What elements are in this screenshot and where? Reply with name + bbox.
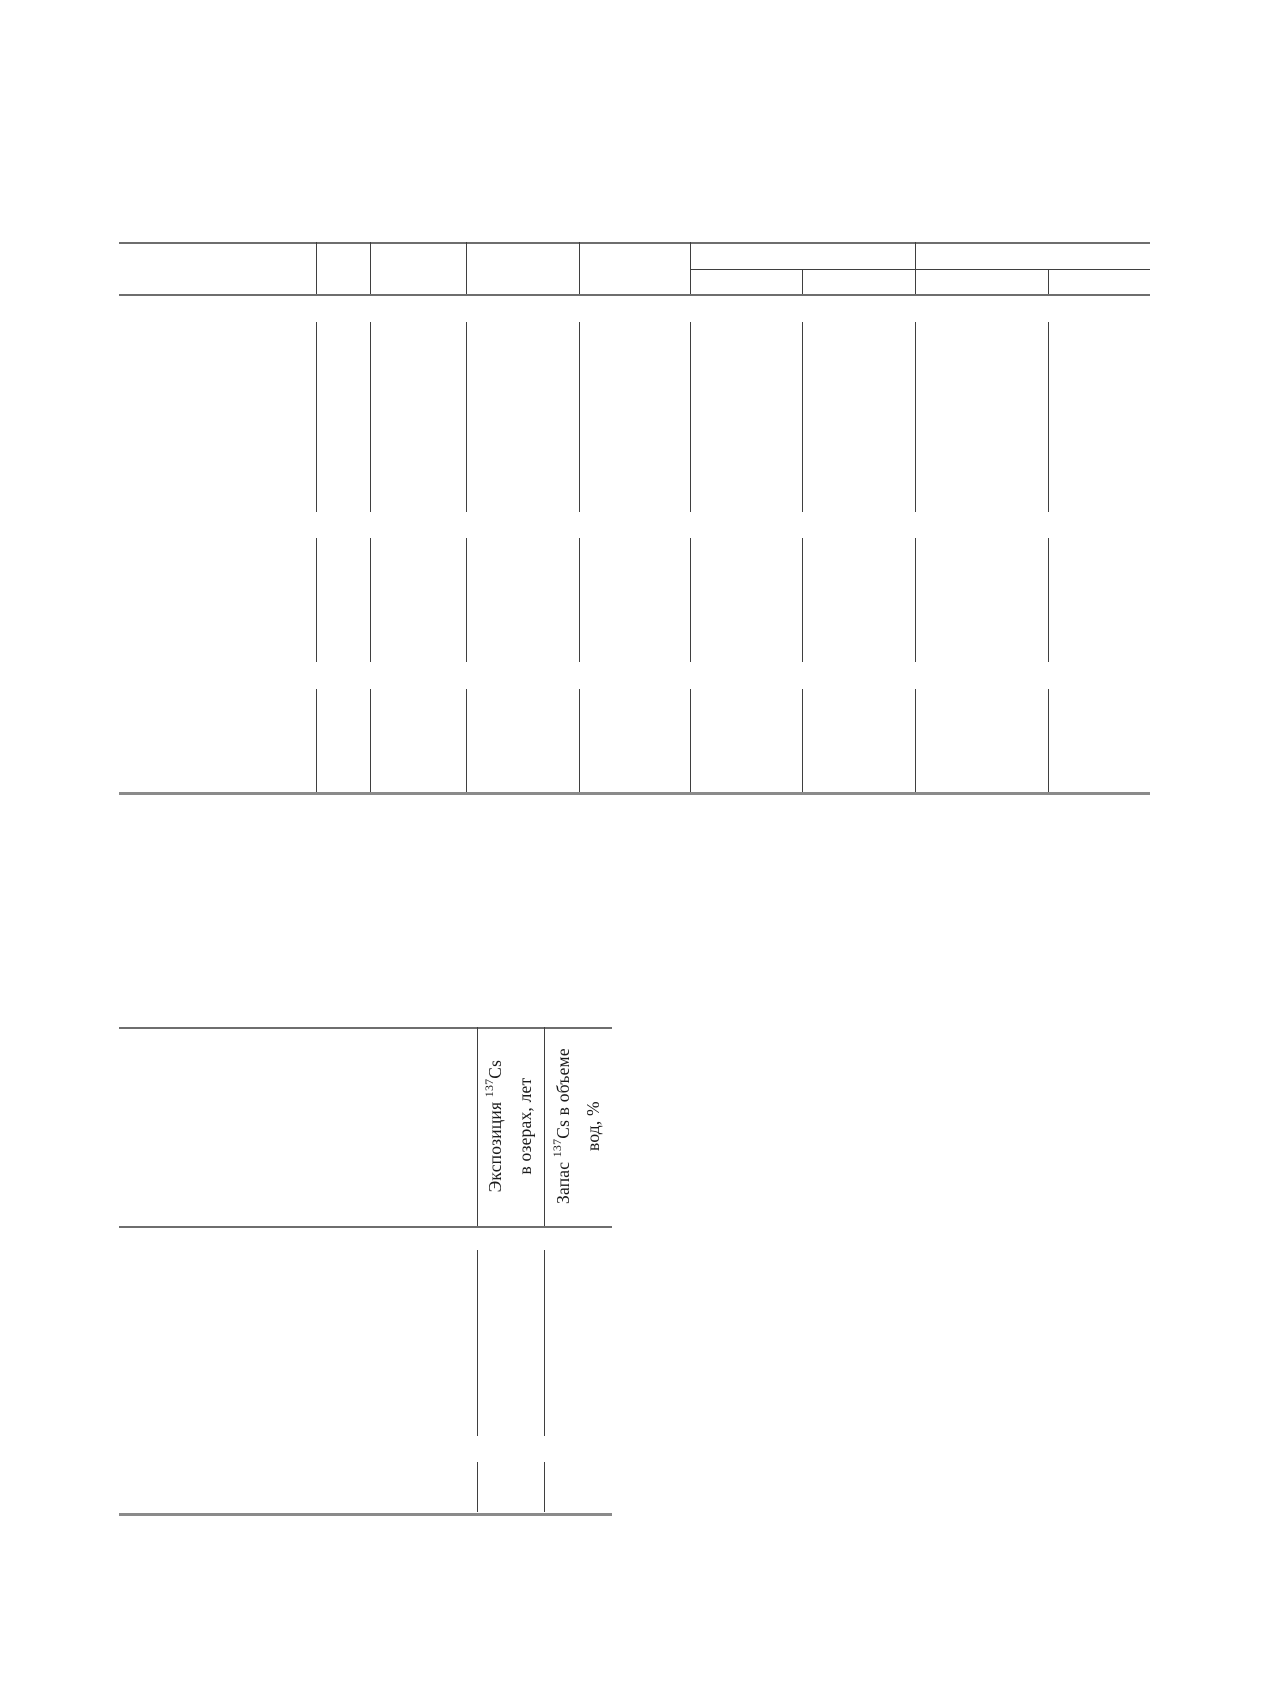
upper-table-body-column-rule [802, 689, 803, 792]
upper-table-body-column-rule [915, 689, 916, 792]
upper-table-subcolumn-rule [802, 269, 803, 294]
upper-table-body-column-rule [915, 538, 916, 662]
upper-table-header-bottom-rule [119, 294, 1150, 296]
upper-table-header-column-rule [466, 242, 467, 294]
lower-table-body-column-rule [544, 1462, 545, 1512]
upper-table-body-column-rule [316, 689, 317, 792]
lower-table-body-column-rule [544, 1250, 545, 1436]
lower-table-header-bottom-rule [119, 1226, 612, 1228]
upper-table-body-column-rule [316, 322, 317, 512]
lower-table-bottom-rule [119, 1513, 612, 1516]
upper-table-header-column-rule [690, 242, 691, 294]
upper-table-body-column-rule [690, 689, 691, 792]
upper-table-body-column-rule [466, 689, 467, 792]
upper-table-body-column-rule [370, 689, 371, 792]
header-label-exposure-137cs: Экспозиция 137Csв озерах, лет [480, 1060, 540, 1192]
upper-table-body-column-rule [466, 322, 467, 512]
upper-table-header-column-rule [316, 242, 317, 294]
upper-table-group-subrule [690, 269, 1150, 270]
upper-table-body-column-rule [915, 322, 916, 512]
upper-table-body-column-rule [1048, 322, 1049, 512]
header-cell-stock-137cs: Запас 137Cs в объемевод, % [544, 1028, 612, 1225]
upper-table-body-column-rule [802, 538, 803, 662]
upper-table-body-column-rule [690, 322, 691, 512]
lower-table-body-column-rule [477, 1250, 478, 1436]
upper-table-header-column-rule [579, 242, 580, 294]
upper-table-body-column-rule [802, 322, 803, 512]
upper-table-body-column-rule [579, 689, 580, 792]
upper-table-body-column-rule [370, 538, 371, 662]
header-cell-exposure-137cs: Экспозиция 137Csв озерах, лет [477, 1028, 544, 1225]
upper-table-header-column-rule [915, 242, 916, 294]
upper-table-body-column-rule [579, 538, 580, 662]
upper-table-top-rule [119, 242, 1150, 244]
upper-table-body-column-rule [466, 538, 467, 662]
upper-table-body-column-rule [579, 322, 580, 512]
lower-table-body-column-rule [477, 1462, 478, 1512]
upper-table-body-column-rule [316, 538, 317, 662]
header-label-stock-137cs: Запас 137Cs в объемевод, % [548, 1049, 608, 1205]
upper-table-body-column-rule [1048, 689, 1049, 792]
upper-table-header-column-rule [370, 242, 371, 294]
upper-table-subcolumn-rule [1048, 269, 1049, 294]
upper-table-body-column-rule [690, 538, 691, 662]
upper-table-body-column-rule [1048, 538, 1049, 662]
upper-table-bottom-rule [119, 792, 1150, 795]
scanned-document-page: Экспозиция 137Csв озерах, лет Запас 137C… [0, 0, 1270, 1683]
upper-table-body-column-rule [370, 322, 371, 512]
